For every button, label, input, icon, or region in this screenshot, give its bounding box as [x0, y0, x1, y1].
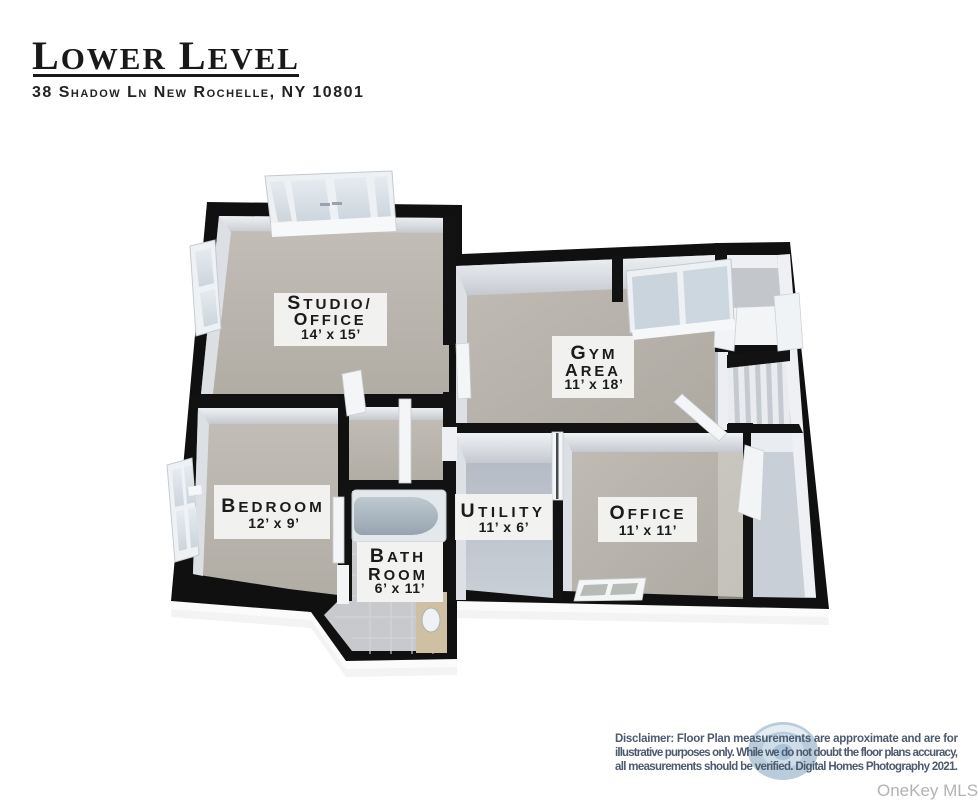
svg-text:11’ x 6’: 11’ x 6’: [479, 519, 530, 535]
svg-text:Disclaimer: Floor Plan meas: Disclaimer: Floor Plan measurements are …: [615, 733, 959, 745]
svg-text:illustrative purposes only. Wh: illustrative purposes only. While we do …: [615, 747, 958, 759]
svg-text:OFFICE: OFFICE: [609, 502, 686, 524]
svg-text:BEDROOM: BEDROOM: [221, 495, 324, 517]
svg-text:12’ x 9’: 12’ x 9’: [248, 515, 300, 531]
svg-text:11’ x 11’: 11’ x 11’: [619, 522, 677, 538]
svg-text:all measurements should be ver: all measurements should be verified. Dig…: [615, 761, 958, 773]
svg-text:38 Shadow Ln New Rochelle, NY: 38 Shadow Ln New Rochelle, NY 10801: [32, 84, 364, 101]
svg-text:11’ x 18’: 11’ x 18’: [564, 376, 623, 392]
svg-text:6’ x 11’: 6’ x 11’: [375, 580, 426, 596]
svg-text:14’ x 15’: 14’ x 15’: [301, 326, 361, 342]
svg-text:OneKey MLS: OneKey MLS: [877, 781, 978, 800]
